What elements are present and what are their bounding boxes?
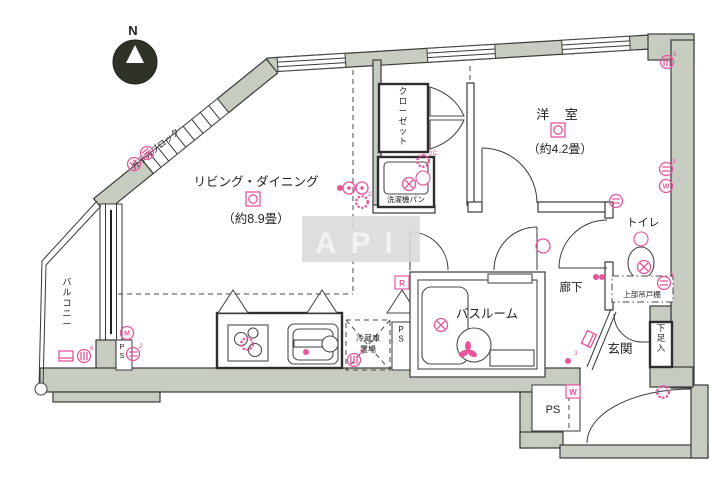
entrance-door xyxy=(587,389,691,443)
label-ps-c: PS xyxy=(546,404,561,416)
svg-text:E: E xyxy=(360,349,365,356)
window-top-3 xyxy=(562,36,631,54)
label-entrance: 玄関 xyxy=(607,341,632,356)
tv-terminal-icon xyxy=(59,351,73,361)
window-top-2 xyxy=(427,44,496,62)
label-western-size: （約4.2畳） xyxy=(528,141,593,156)
point-icon xyxy=(593,274,599,280)
label-living-size: （約8.9畳） xyxy=(222,211,289,226)
toilet-door xyxy=(559,220,607,268)
range-label-icon: R xyxy=(395,276,409,289)
label-laundry: 洗濯機パン xyxy=(387,194,425,204)
svg-text:3: 3 xyxy=(574,350,578,357)
entrance-inner-door xyxy=(614,314,642,342)
label-balcony: バルコニー xyxy=(62,277,71,329)
downlight-icon xyxy=(416,171,430,185)
intercom-icon xyxy=(582,331,597,348)
svg-text:R: R xyxy=(399,279,405,288)
svg-text:6: 6 xyxy=(673,51,677,58)
svg-text:3: 3 xyxy=(672,158,676,165)
label-ps-b: PS xyxy=(119,342,124,360)
floor-plan: リビング・ダイニング（約8.9畳）洋 室（約4.2畳）バスルーム廊下トイレ上部吊… xyxy=(0,0,710,479)
bathroom-unit xyxy=(410,272,545,377)
hood-symbol xyxy=(218,290,248,313)
kitchen-counter xyxy=(217,290,417,368)
bifold-door xyxy=(430,87,464,116)
washer-label-icon: W xyxy=(566,385,580,398)
svg-text:M: M xyxy=(124,331,130,338)
label-living-name: リビング・ダイニング xyxy=(193,174,318,189)
label-hallway: 廊下 xyxy=(560,280,583,294)
label-compass-n: N xyxy=(128,23,137,38)
outlet-icon xyxy=(610,195,623,208)
label-bathroom: バスルーム xyxy=(456,307,518,321)
point-icon: 3 xyxy=(565,350,578,364)
ceiling-light-western-icon xyxy=(551,123,565,137)
compass xyxy=(113,40,157,84)
bath-counter xyxy=(490,350,534,366)
western-room-door xyxy=(482,148,537,203)
svg-text:2C: 2C xyxy=(429,150,438,157)
toilet-fixture xyxy=(628,247,654,279)
label-ps-a: PS xyxy=(398,325,403,344)
svg-text:W: W xyxy=(569,388,577,397)
switch-icon xyxy=(356,182,368,194)
closet xyxy=(379,84,464,152)
point-icon xyxy=(599,274,605,280)
label-shoebox: 下足入 xyxy=(657,323,666,353)
label-closet: クローゼット xyxy=(399,86,408,146)
label-watermark: API xyxy=(315,227,407,260)
label-toilet: トイレ xyxy=(627,217,660,229)
label-fridge-1: 冷蔵庫 xyxy=(356,333,380,343)
faucet-point-icon xyxy=(303,349,309,355)
hood-symbol xyxy=(307,290,337,313)
outlet-icon: E xyxy=(348,349,366,367)
bifold-door xyxy=(430,120,464,149)
outlet-icon xyxy=(657,386,669,398)
svg-text:2: 2 xyxy=(368,191,372,198)
downlight-icon xyxy=(634,232,648,246)
downlight-icon xyxy=(536,239,550,253)
balcony-window xyxy=(100,204,122,340)
hallway-door xyxy=(494,227,537,270)
outlet-icon: 6 xyxy=(78,345,95,363)
glass-block-wall xyxy=(94,59,278,213)
svg-text:2: 2 xyxy=(139,343,143,350)
floor-plan-page: リビング・ダイニング（約8.9畳）洋 室（約4.2畳）バスルーム廊下トイレ上部吊… xyxy=(0,0,710,479)
svg-text:6: 6 xyxy=(90,345,94,352)
label-western-name: 洋 室 xyxy=(536,107,584,122)
point-icon xyxy=(337,185,343,191)
svg-text:3: 3 xyxy=(670,272,674,279)
label-cabinet: 上部吊戸棚 xyxy=(623,289,661,299)
ceiling-light-living-icon xyxy=(246,192,260,206)
window-top-1 xyxy=(277,53,346,71)
svg-text:W: W xyxy=(663,184,670,191)
